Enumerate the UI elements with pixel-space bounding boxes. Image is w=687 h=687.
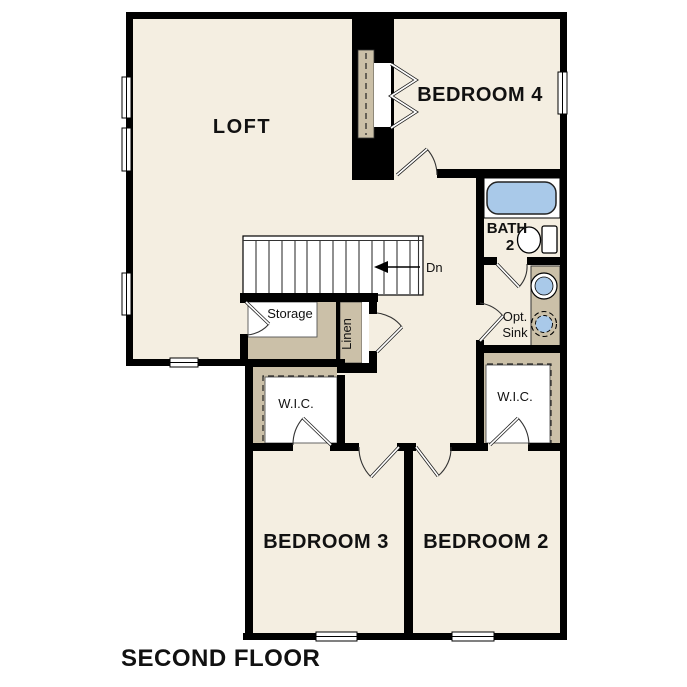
bedroom4-label: BEDROOM 4 <box>417 84 543 106</box>
storage-label: Storage <box>267 306 313 321</box>
loft-label: LOFT <box>213 116 271 138</box>
bath-label-line1: BATH <box>487 220 528 237</box>
page-title: SECOND FLOOR <box>121 645 320 672</box>
opt-sink-label-line1: Opt. <box>503 309 528 324</box>
wall-linen-east-bottom <box>369 351 377 373</box>
bedroom4-closet-floor <box>374 63 391 127</box>
wall-bedroom2-top-right <box>528 443 567 451</box>
wall-bedroom-divider <box>404 443 413 633</box>
toilet-tank <box>542 226 557 253</box>
linen-label: Linen <box>339 318 354 350</box>
bedroom3-label: BEDROOM 3 <box>263 531 389 553</box>
bedroom2-label: BEDROOM 2 <box>423 531 549 553</box>
sink-bowl <box>535 277 553 295</box>
floor-plan-page: LOFT BEDROOM 4 BEDROOM 3 BEDROOM 2 BATH … <box>0 0 687 687</box>
wall-bath-bottom-left <box>484 257 497 265</box>
wall-bath-west-lower <box>476 340 484 450</box>
wall-linen-east-top <box>369 294 377 314</box>
wall-bedroom4-bottom <box>437 169 567 178</box>
wic-left-label: W.I.C. <box>278 396 313 411</box>
wall-bedroom3-top-mid <box>330 443 359 451</box>
staircase <box>243 236 423 295</box>
wall-top-exterior <box>126 12 567 19</box>
linen-floor-strip <box>362 302 369 363</box>
wic-right-label: W.I.C. <box>497 389 532 404</box>
wall-sinkhall-bottom <box>476 345 567 353</box>
wall-bath-bottom-right <box>527 257 567 265</box>
wall-wic-left-east <box>337 375 345 445</box>
floor-plan-drawing: LOFT BEDROOM 4 BEDROOM 3 BEDROOM 2 BATH … <box>0 0 687 687</box>
wall-stairs-bottom <box>240 293 378 302</box>
wall-bedroom3-top-left <box>245 443 293 451</box>
wall-bath-west-upper <box>476 178 484 305</box>
wall-bottom-exterior <box>243 633 567 640</box>
bath-label-line2: 2 <box>506 237 514 254</box>
wall-storage-wic-divider <box>245 359 345 367</box>
wic-right-interior <box>486 365 550 443</box>
wall-wic-left-west <box>245 359 253 640</box>
optional-sink-bowl <box>536 316 553 333</box>
bathtub <box>487 182 556 214</box>
stair-direction-label: Dn <box>426 260 443 275</box>
opt-sink-label-line2: Sink <box>502 325 528 340</box>
